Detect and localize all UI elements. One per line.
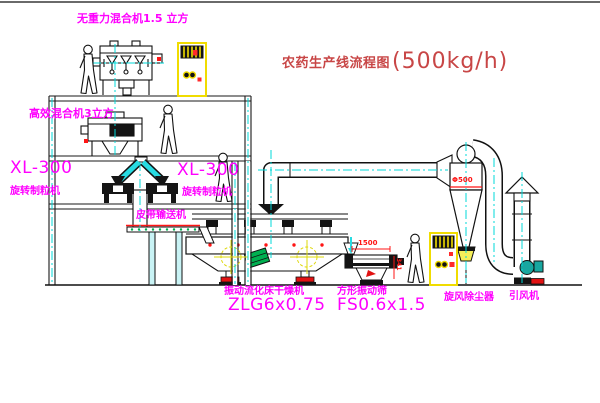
label-belt-conveyor: 皮带输送机 (136, 211, 186, 221)
label-cyclone-name: 旋风除尘器 (444, 293, 494, 303)
label-dryer-model: ZLG6x0.75 (228, 297, 326, 314)
control-cabinet-icon-top (178, 43, 206, 96)
dim-sieve-height: 341 (395, 258, 401, 271)
label-granulator-left-model: XL-300 (10, 160, 72, 177)
diagram-title: 农药生产线流程图 (500kg/h) (282, 49, 508, 74)
label-granulator-left-name: 旋转制粒机 (10, 187, 60, 197)
dim-sieve-length: 1500 (358, 240, 377, 247)
red-marker-dot (84, 139, 88, 143)
dim-cyclone-diameter: Φ500 (452, 177, 473, 184)
control-cabinet-icon-ground (430, 233, 457, 285)
label-fan-name: 引风机 (509, 292, 539, 302)
granulator-drawing-left (102, 176, 134, 203)
gravity-mixer-drawing (93, 41, 162, 95)
diagram-title-capacity: (500kg/h) (392, 49, 508, 74)
label-gravity-mixer: 无重力混合机1.5 立方 (77, 13, 188, 24)
label-granulator-right-name: 旋转制粒机 (182, 188, 232, 198)
label-high-eff-mixer: 高效混合机3立方 (29, 108, 114, 119)
granulator-drawing-right (146, 176, 178, 203)
fluid-bed-dryer-drawing (186, 204, 348, 285)
flow-diagram-canvas: 农药生产线流程图 (500kg/h) 无重力混合机1.5 立方 高效混合机3立方… (0, 0, 600, 403)
red-marker-dot (157, 57, 161, 61)
person-figure (160, 105, 177, 153)
person-figure (80, 45, 97, 93)
label-sieve-model: FS0.6x1.5 (337, 297, 426, 314)
label-granulator-right-model: XL-300 (177, 162, 239, 179)
person-figure (407, 234, 424, 282)
diagram-title-text: 农药生产线流程图 (282, 52, 390, 71)
